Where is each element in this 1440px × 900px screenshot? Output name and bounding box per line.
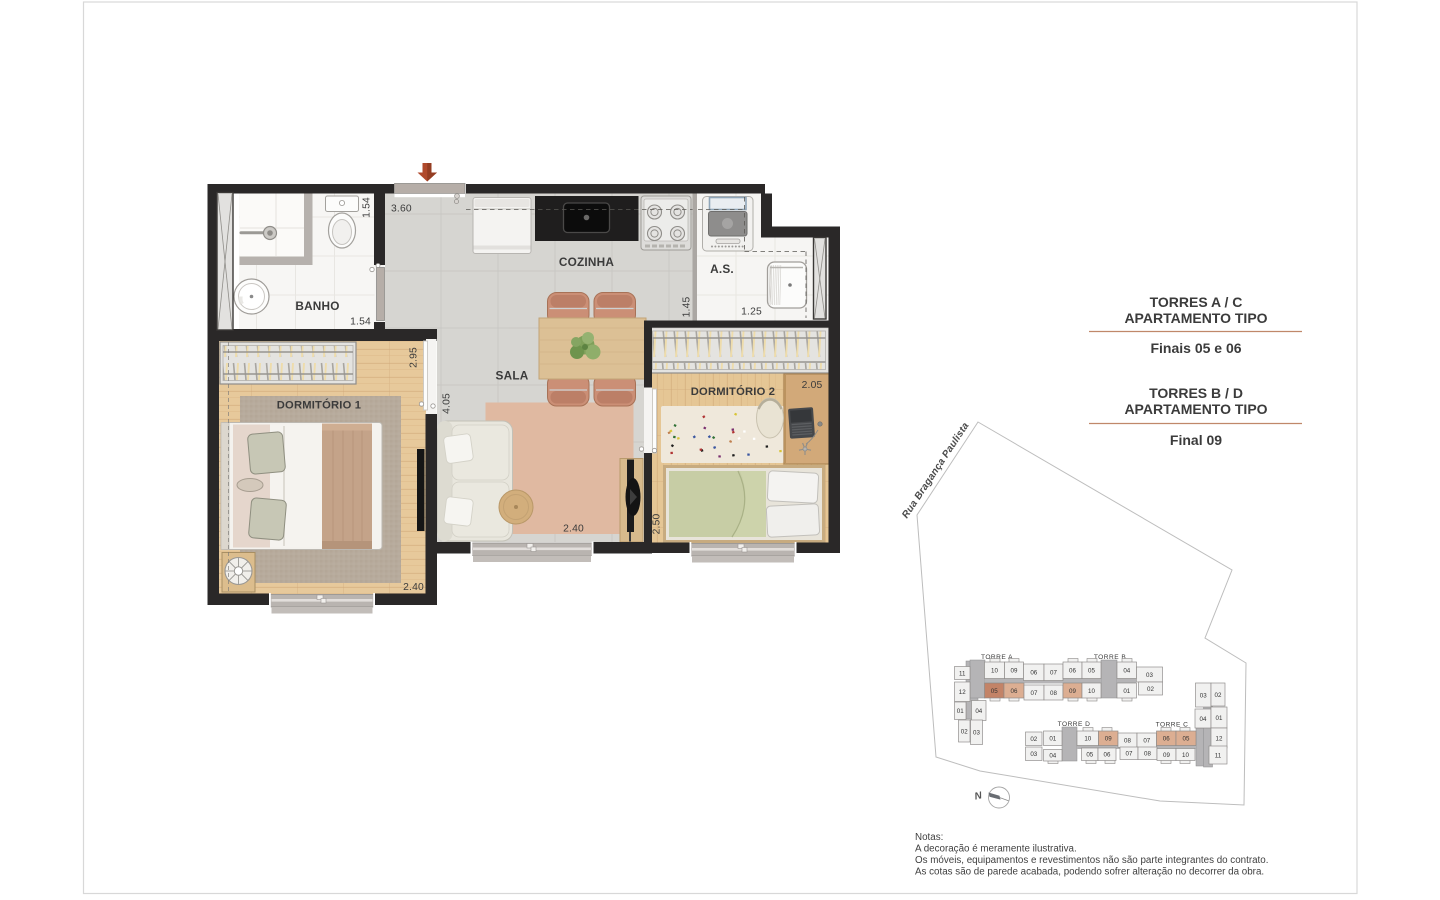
svg-text:04: 04	[1049, 753, 1056, 760]
svg-text:1.54: 1.54	[350, 317, 371, 328]
svg-text:07: 07	[1143, 738, 1150, 745]
svg-text:02: 02	[1147, 686, 1154, 693]
svg-text:APARTAMENTO TIPO: APARTAMENTO TIPO	[1124, 401, 1267, 417]
svg-text:01: 01	[957, 708, 964, 715]
svg-text:A decoração é meramente ilustr: A decoração é meramente ilustrativa.	[915, 844, 1077, 855]
svg-text:02: 02	[1030, 736, 1037, 743]
svg-text:05: 05	[991, 688, 998, 695]
svg-text:10: 10	[1084, 736, 1091, 743]
svg-text:06: 06	[1011, 688, 1018, 695]
svg-text:06: 06	[1030, 670, 1037, 677]
svg-text:03: 03	[973, 730, 980, 737]
svg-text:DORMITÓRIO 1: DORMITÓRIO 1	[277, 399, 361, 412]
svg-text:03: 03	[1200, 692, 1207, 699]
svg-text:2.40: 2.40	[563, 524, 584, 535]
svg-text:12: 12	[1216, 735, 1223, 742]
svg-text:Os móveis, equipamentos e reve: Os móveis, equipamentos e revestimentos …	[915, 855, 1268, 866]
svg-text:10: 10	[1182, 752, 1189, 759]
svg-text:01: 01	[1216, 715, 1223, 722]
svg-text:A.S.: A.S.	[710, 262, 734, 276]
svg-text:2.95: 2.95	[409, 347, 420, 368]
svg-text:Finais 05 e 06: Finais 05 e 06	[1150, 340, 1241, 356]
svg-text:Notas:: Notas:	[915, 832, 943, 843]
svg-text:01: 01	[1123, 688, 1130, 695]
svg-text:02: 02	[961, 728, 968, 735]
svg-text:05: 05	[1183, 736, 1190, 743]
svg-text:11: 11	[959, 670, 966, 677]
svg-text:DORMITÓRIO 2: DORMITÓRIO 2	[691, 385, 775, 398]
svg-text:08: 08	[1124, 738, 1131, 745]
svg-text:09: 09	[1163, 752, 1170, 759]
svg-text:06: 06	[1163, 736, 1170, 743]
svg-text:09: 09	[1069, 688, 1076, 695]
svg-text:10: 10	[1088, 688, 1095, 695]
svg-text:07: 07	[1126, 751, 1133, 758]
svg-text:01: 01	[1049, 736, 1056, 743]
svg-text:07: 07	[1031, 690, 1038, 697]
svg-text:APARTAMENTO TIPO: APARTAMENTO TIPO	[1124, 310, 1267, 326]
svg-text:06: 06	[1104, 752, 1111, 759]
svg-text:COZINHA: COZINHA	[559, 255, 614, 269]
svg-text:1.45: 1.45	[682, 297, 693, 318]
svg-text:BANHO: BANHO	[295, 299, 339, 313]
svg-text:04: 04	[1200, 716, 1207, 723]
svg-text:02: 02	[1215, 692, 1222, 699]
svg-text:05: 05	[1086, 752, 1093, 759]
svg-text:06: 06	[1069, 668, 1076, 675]
svg-text:09: 09	[1011, 668, 1018, 675]
svg-text:TORRES B / D: TORRES B / D	[1149, 385, 1243, 401]
svg-text:07: 07	[1050, 670, 1057, 677]
svg-text:08: 08	[1050, 690, 1057, 697]
svg-text:04: 04	[1123, 668, 1130, 675]
svg-text:TORRES A / C: TORRES A / C	[1150, 294, 1243, 310]
svg-text:1.25: 1.25	[741, 307, 762, 318]
svg-text:05: 05	[1088, 668, 1095, 675]
svg-text:03: 03	[1030, 751, 1037, 758]
svg-text:Final 09: Final 09	[1170, 432, 1222, 448]
svg-text:11: 11	[1215, 752, 1222, 759]
svg-text:2.50: 2.50	[652, 514, 663, 535]
svg-text:2.40: 2.40	[403, 582, 424, 593]
svg-text:04: 04	[975, 708, 982, 715]
svg-text:3.60: 3.60	[391, 204, 412, 215]
svg-text:08: 08	[1144, 751, 1151, 758]
svg-text:03: 03	[1146, 672, 1153, 679]
svg-text:4.05: 4.05	[442, 393, 453, 414]
svg-text:12: 12	[959, 689, 966, 696]
svg-text:SALA: SALA	[496, 369, 529, 383]
svg-text:10: 10	[991, 668, 998, 675]
svg-text:1.54: 1.54	[362, 197, 373, 218]
svg-text:09: 09	[1105, 736, 1112, 743]
svg-text:2.05: 2.05	[802, 380, 823, 391]
svg-text:As cotas são de parede acabada: As cotas são de parede acabada, podendo …	[915, 867, 1264, 878]
